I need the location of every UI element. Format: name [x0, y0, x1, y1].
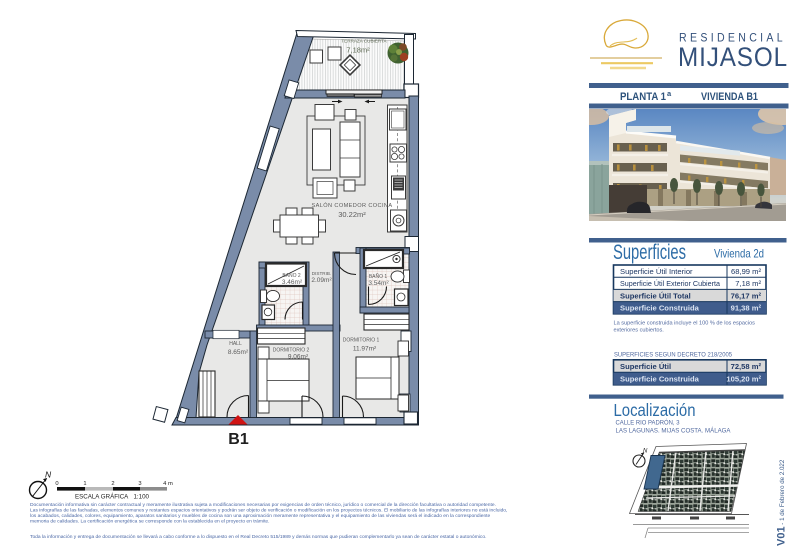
- svg-text:0: 0: [55, 481, 58, 487]
- svg-text:memoria de calidades. La certi: memoria de calidades. La certificación e…: [30, 519, 270, 525]
- svg-text:BAÑO 2: BAÑO 2: [282, 272, 301, 279]
- svg-text:CALLE RIO PADRÓN, 3: CALLE RIO PADRÓN, 3: [616, 418, 680, 427]
- svg-text:11.97m²: 11.97m²: [353, 346, 377, 353]
- svg-text:2: 2: [111, 481, 114, 487]
- svg-text:4 m: 4 m: [163, 481, 173, 487]
- svg-text:3.46m²: 3.46m²: [282, 279, 303, 286]
- svg-text:30.22m²: 30.22m²: [338, 210, 366, 219]
- svg-text:Superficie Construida: Superficie Construida: [620, 304, 700, 313]
- svg-text:V01 - 1 de Febrero de 2.022: V01 - 1 de Febrero de 2.022: [776, 459, 788, 546]
- svg-text:7,18 m²: 7,18 m²: [735, 279, 761, 288]
- svg-text:8.65m²: 8.65m²: [228, 349, 249, 356]
- svg-text:HALL: HALL: [229, 341, 242, 347]
- svg-text:ESCALA GRÁFICA 1:100: ESCALA GRÁFICA 1:100: [75, 494, 149, 501]
- svg-text:Documentación informativa sin: Documentación informativa sin carácter c…: [30, 502, 496, 508]
- svg-text:DORMITORIO 1: DORMITORIO 1: [343, 338, 380, 344]
- svg-text:Superficie Útil Total: Superficie Útil Total: [620, 291, 691, 300]
- svg-text:N: N: [643, 449, 648, 455]
- svg-text:SUPERFICIES SEGUN DECRETO 218/: SUPERFICIES SEGUN DECRETO 218/2005: [614, 352, 732, 359]
- svg-text:9.06m²: 9.06m²: [288, 354, 309, 361]
- svg-text:Superficie Útil Interior: Superficie Útil Interior: [620, 267, 693, 276]
- svg-text:3.54m²: 3.54m²: [368, 280, 389, 287]
- svg-text:DISTRIB.: DISTRIB.: [312, 271, 331, 276]
- svg-text:La superficie construida inclu: La superficie construida incluye el 100 …: [614, 321, 756, 327]
- svg-text:PLANTA 1: PLANTA 1: [620, 91, 666, 103]
- svg-text:1: 1: [83, 481, 86, 487]
- svg-text:VIVIENDA B1: VIVIENDA B1: [701, 91, 758, 103]
- svg-text:Superficies: Superficies: [613, 240, 686, 264]
- svg-text:los acabados, calidades, col: los acabados, calidades, colores, equipa…: [30, 513, 491, 519]
- svg-text:105,20 m²: 105,20 m²: [726, 375, 761, 384]
- svg-text:68,99 m²: 68,99 m²: [731, 267, 761, 276]
- svg-text:exteriores cubiertos.: exteriores cubiertos.: [614, 328, 665, 334]
- svg-text:Superficie Útil Exterior Cubie: Superficie Útil Exterior Cubierta: [620, 279, 721, 288]
- svg-text:Vivienda 2d: Vivienda 2d: [714, 247, 764, 261]
- svg-text:a: a: [667, 89, 672, 98]
- svg-text:Localización: Localización: [614, 400, 696, 420]
- svg-text:Superficie Construida: Superficie Construida: [620, 375, 700, 384]
- svg-text:91,38 m²: 91,38 m²: [731, 304, 762, 313]
- svg-text:LAS LAGUNAS. MIJAS COSTA. MÁLA: LAS LAGUNAS. MIJAS COSTA. MÁLAGA: [616, 426, 732, 435]
- svg-text:Las infografías de las fachada: Las infografías de las fachadas, element…: [30, 508, 507, 514]
- svg-text:2.09m²: 2.09m²: [311, 277, 332, 284]
- svg-text:N: N: [45, 470, 52, 480]
- svg-text:TERRAZA CUBIERTA: TERRAZA CUBIERTA: [341, 39, 387, 44]
- svg-text:Superficie Útil: Superficie Útil: [620, 362, 671, 371]
- svg-text:MIJASOL: MIJASOL: [678, 42, 788, 72]
- svg-text:Toda la información y entrega: Toda la información y entrega de documen…: [30, 534, 486, 540]
- svg-text:3: 3: [138, 481, 141, 487]
- svg-text:72,58 m²: 72,58 m²: [731, 362, 762, 371]
- svg-text:B1: B1: [228, 431, 249, 448]
- svg-text:BAÑO 1: BAÑO 1: [369, 273, 388, 280]
- svg-text:SALÓN COMEDOR COCINA: SALÓN COMEDOR COCINA: [311, 202, 392, 209]
- svg-text:7,18m²: 7,18m²: [346, 46, 370, 55]
- svg-text:76,17 m²: 76,17 m²: [731, 291, 762, 300]
